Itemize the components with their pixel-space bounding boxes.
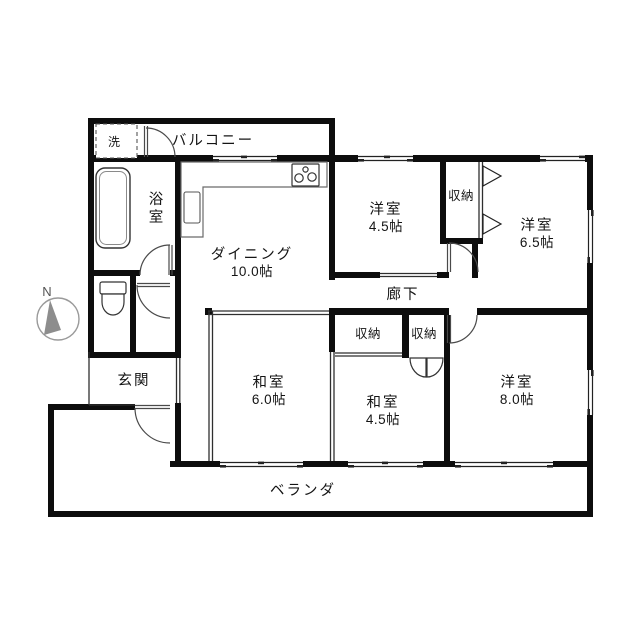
- window-western80-bottom: [455, 461, 553, 468]
- entrance-label: 玄関: [118, 372, 151, 389]
- western80-size: 8.0帖: [500, 392, 534, 407]
- closet-left-label: 収納: [355, 327, 381, 341]
- dining-size: 10.0帖: [231, 264, 273, 279]
- window-western65-right: [587, 210, 594, 263]
- western65-label: 洋室: [521, 217, 554, 234]
- north-compass-icon: [37, 298, 79, 340]
- balcony-door: [145, 126, 176, 157]
- toilet-icon: [100, 282, 126, 315]
- closet-bifold-doors: [410, 358, 443, 377]
- western45-label: 洋室: [370, 201, 403, 218]
- japanese45-size: 4.5帖: [366, 412, 400, 427]
- japanese45-label: 和室: [367, 394, 400, 411]
- veranda-walls: [48, 404, 593, 517]
- laundry-label: 洗: [108, 135, 120, 149]
- japanese60-size: 6.0帖: [252, 392, 286, 407]
- western45-size: 4.5帖: [369, 219, 403, 234]
- window-japanese45-bottom: [348, 461, 423, 468]
- western80-label: 洋室: [501, 374, 534, 391]
- bath-door: [140, 245, 172, 275]
- bath-label-1: 浴: [149, 191, 166, 208]
- floor-plan: バルコニー 洗 浴 室 ダイニング 10.0帖 洋室 4.5帖 収納 洋室 6.…: [0, 0, 636, 636]
- washroom-door: [137, 284, 170, 319]
- bath-label-2: 室: [149, 209, 166, 226]
- window-dining-top: [213, 155, 277, 162]
- window-western65-top: [540, 155, 585, 162]
- window-western80-right: [587, 370, 594, 415]
- dining-label: ダイニング: [211, 246, 294, 263]
- top-closet-folding-doors: [483, 166, 501, 234]
- stove-burner-icon: [292, 164, 319, 186]
- kitchen-sink-icon: [184, 192, 200, 223]
- bathtub-icon: [96, 168, 130, 248]
- closet-top-label: 収納: [448, 189, 474, 203]
- veranda-label: ベランダ: [270, 482, 336, 499]
- front-door: [135, 406, 170, 444]
- japanese60-label: 和室: [253, 374, 286, 391]
- kitchen-counter: [181, 162, 327, 237]
- western80-door: [448, 315, 478, 343]
- compass-n-label: N: [42, 284, 51, 299]
- window-western45-top: [358, 155, 413, 162]
- closet-right-label: 収納: [411, 327, 437, 341]
- window-japanese60-bottom: [220, 461, 303, 468]
- corridor-label: 廊下: [387, 286, 420, 303]
- western65-size: 6.5帖: [520, 235, 554, 250]
- balcony-label: バルコニー: [172, 133, 254, 149]
- floor-plan-drawing: バルコニー 洗 浴 室 ダイニング 10.0帖 洋室 4.5帖 収納 洋室 6.…: [0, 0, 636, 636]
